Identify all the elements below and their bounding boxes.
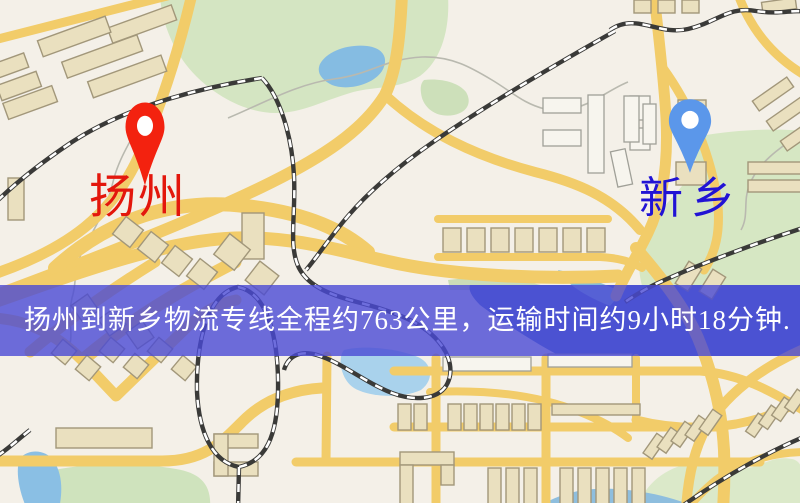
square-building-row-2 bbox=[398, 404, 541, 430]
destination-pin[interactable] bbox=[664, 97, 716, 175]
map-screenshot: 扬州 新乡 扬州到新乡物流专线全程约763公里，运输时间约9小时18分钟. bbox=[0, 0, 800, 503]
origin-city-label: 扬州 bbox=[86, 175, 190, 222]
route-info-banner: 扬州到新乡物流专线全程约763公里，运输时间约9小时18分钟. bbox=[0, 285, 800, 356]
square-building-row bbox=[443, 228, 605, 252]
destination-city-label: 新乡 bbox=[636, 177, 746, 221]
map-background bbox=[0, 0, 800, 503]
route-info-text: 扬州到新乡物流专线全程约763公里，运输时间约9小时18分钟. bbox=[0, 285, 800, 356]
destination-pin-hole bbox=[681, 111, 698, 129]
destination-pin-shape bbox=[669, 99, 711, 173]
origin-pin-hole bbox=[137, 116, 153, 136]
